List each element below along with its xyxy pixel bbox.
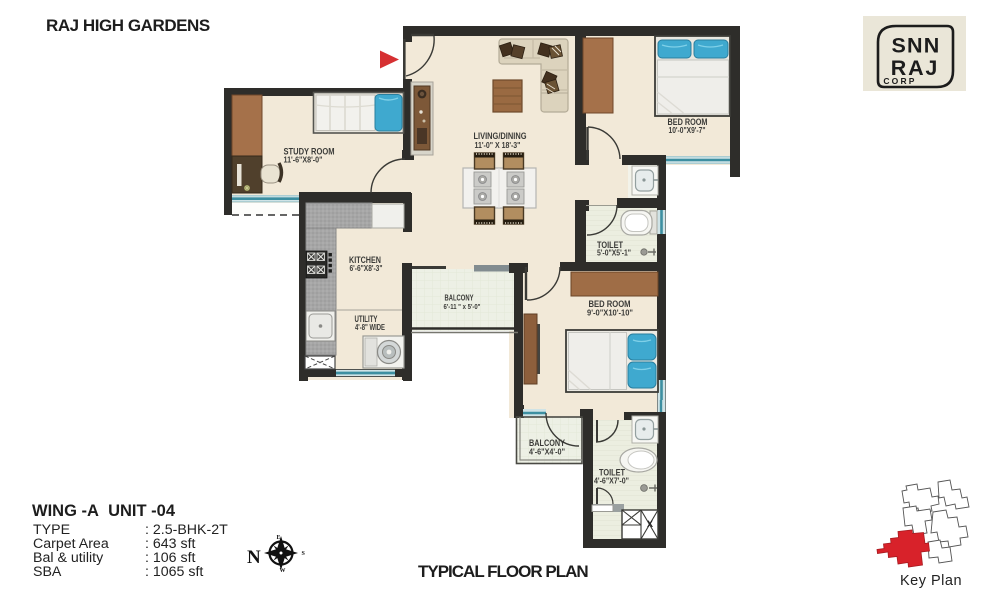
svg-text:SNN: SNN: [892, 34, 941, 58]
svg-text:: 1065 sft: : 1065 sft: [145, 564, 203, 580]
svg-text:CORP: CORP: [883, 76, 916, 86]
svg-text:RAJ HIGH GARDENS: RAJ HIGH GARDENS: [46, 16, 210, 35]
svg-text:BALCONY: BALCONY: [529, 438, 565, 448]
svg-text:4'-6"X4'-0": 4'-6"X4'-0": [529, 448, 565, 457]
svg-text:11'-6"X8'-0": 11'-6"X8'-0": [284, 156, 323, 165]
svg-text:SBA: SBA: [33, 564, 62, 580]
svg-text:11'-0" X 18'-3": 11'-0" X 18'-3": [475, 141, 521, 150]
svg-text:9'-0"X10'-10": 9'-0"X10'-10": [587, 309, 633, 318]
svg-text:4'-8" WIDE: 4'-8" WIDE: [355, 323, 385, 332]
svg-text:X: X: [647, 519, 653, 529]
svg-text:WING -A UNIT -04: WING -A UNIT -04: [32, 502, 176, 520]
svg-text:6'-11 " x 5'-0": 6'-11 " x 5'-0": [444, 302, 481, 311]
svg-text:BED ROOM: BED ROOM: [589, 299, 631, 309]
svg-text:W: W: [280, 568, 286, 574]
svg-text:Key Plan: Key Plan: [900, 573, 962, 589]
svg-text:LIVING/DINING: LIVING/DINING: [474, 131, 527, 141]
svg-text:6'-6"X8'-3": 6'-6"X8'-3": [350, 264, 383, 273]
svg-text:TYPICAL FLOOR PLAN: TYPICAL FLOOR PLAN: [418, 562, 588, 581]
svg-text:E: E: [277, 535, 281, 541]
svg-text:4'-6"X7'-0": 4'-6"X7'-0": [594, 477, 629, 486]
svg-text:N: N: [247, 547, 261, 568]
svg-text:5'-0"X5'-1": 5'-0"X5'-1": [597, 249, 631, 258]
svg-text:10'-0"X9'-7": 10'-0"X9'-7": [669, 126, 706, 135]
